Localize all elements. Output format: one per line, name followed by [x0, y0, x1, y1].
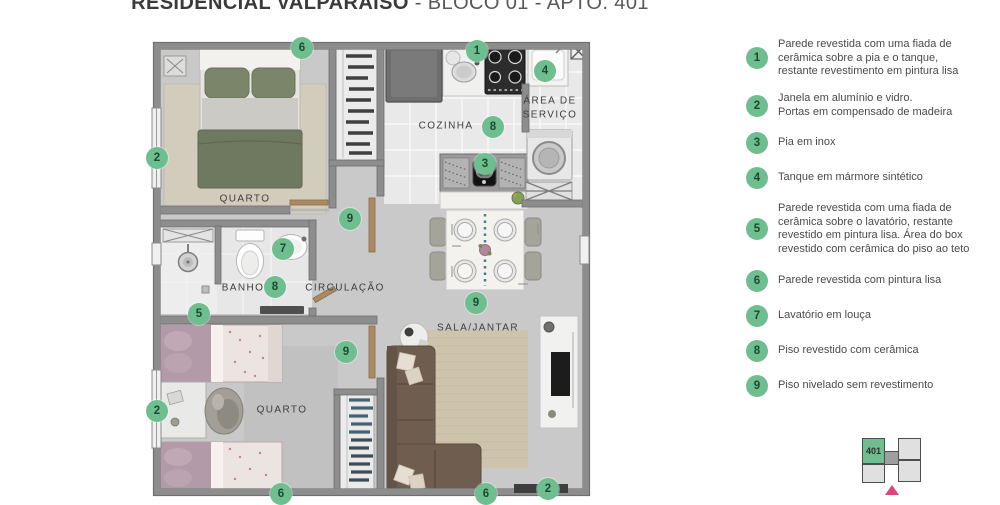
page-title: RESIDENCIAL VALPARAÍSO - BLOCO 01 - APTO…	[0, 0, 780, 15]
floor-plan-overlay: QUARTOCOZINHAÁREA DE SERVIÇOBANHOCIRCULA…	[148, 40, 593, 498]
room-label--rea-de-servi-o: ÁREA DE SERVIÇO	[523, 95, 578, 122]
key-plan-unit	[862, 464, 885, 483]
room-label-quarto: QUARTO	[257, 403, 308, 417]
legend-number-badge: 2	[746, 95, 768, 117]
floor-plan: QUARTOCOZINHAÁREA DE SERVIÇOBANHOCIRCULA…	[148, 40, 593, 498]
key-plan-unit	[898, 460, 921, 482]
plan-marker-6: 6	[475, 483, 497, 505]
legend-item-6: 6 Parede revestida com pintura lisa	[746, 270, 998, 292]
plan-marker-9: 9	[465, 292, 487, 314]
legend-item-text: Parede revestida com pintura lisa	[778, 274, 941, 288]
page-title-suffix: - BLOCO 01 - APTO. 401	[409, 0, 649, 14]
legend-item-7: 7 Lavatório em louça	[746, 305, 998, 327]
plan-marker-6: 6	[291, 37, 313, 59]
legend-item-8: 8 Piso revestido com cerâmica	[746, 340, 998, 362]
legend-item-text: Parede revestida com uma fiada de cerâmi…	[778, 202, 969, 257]
plan-marker-5: 5	[188, 303, 210, 325]
plan-marker-2: 2	[146, 400, 168, 422]
key-plan-unit-401: 401	[862, 438, 885, 464]
room-label-sala-jantar: SALA/JANTAR	[437, 321, 519, 335]
legend-item-text: Tanque em mármore sintético	[778, 171, 923, 185]
plan-marker-4: 4	[534, 60, 556, 82]
legend-number-badge: 1	[746, 47, 768, 69]
key-plan-core	[884, 451, 899, 465]
plan-marker-6: 6	[270, 483, 292, 505]
legend-item-1: 1 Parede revestida com uma fiada de cerâ…	[746, 38, 998, 79]
page-title-main: RESIDENCIAL VALPARAÍSO	[131, 0, 409, 14]
legend-item-text: Janela em alumínio e vidro. Portas em co…	[778, 92, 952, 119]
legend-item-2: 2 Janela em alumínio e vidro. Portas em …	[746, 92, 998, 119]
legend-number-badge: 9	[746, 375, 768, 397]
legend-number-badge: 6	[746, 270, 768, 292]
key-plan-north-arrow	[885, 485, 899, 495]
key-plan: 401	[856, 436, 932, 492]
plan-marker-7: 7	[272, 238, 294, 260]
plan-marker-3: 3	[474, 153, 496, 175]
legend-item-3: 3 Pia em inox	[746, 132, 998, 154]
legend-item-9: 9 Piso nivelado sem revestimento	[746, 375, 998, 397]
plan-marker-2: 2	[537, 478, 559, 500]
legend-item-text: Piso nivelado sem revestimento	[778, 379, 933, 393]
legend-number-badge: 5	[746, 218, 768, 240]
key-plan-unit	[898, 438, 921, 460]
room-label-cozinha: COZINHA	[419, 119, 474, 133]
room-label-circula-o: CIRCULAÇÃO	[305, 281, 385, 295]
legend-number-badge: 4	[746, 167, 768, 189]
plan-marker-9: 9	[335, 341, 357, 363]
plan-marker-2: 2	[146, 147, 168, 169]
room-label-banho: BANHO	[222, 281, 265, 295]
legend-item-5: 5 Parede revestida com uma fiada de cerâ…	[746, 202, 998, 257]
legend: 1 Parede revestida com uma fiada de cerâ…	[746, 38, 998, 397]
room-label-quarto: QUARTO	[220, 192, 271, 206]
legend-number-badge: 7	[746, 305, 768, 327]
plan-marker-8: 8	[264, 276, 286, 298]
plan-marker-9: 9	[339, 208, 361, 230]
legend-item-text: Piso revestido com cerâmica	[778, 344, 919, 358]
legend-item-text: Parede revestida com uma fiada de cerâmi…	[778, 38, 958, 79]
legend-item-4: 4 Tanque em mármore sintético	[746, 167, 998, 189]
legend-item-text: Pia em inox	[778, 136, 835, 150]
plan-marker-1: 1	[466, 40, 488, 62]
legend-number-badge: 8	[746, 340, 768, 362]
legend-number-badge: 3	[746, 132, 768, 154]
plan-marker-8: 8	[482, 116, 504, 138]
legend-item-text: Lavatório em louça	[778, 309, 871, 323]
